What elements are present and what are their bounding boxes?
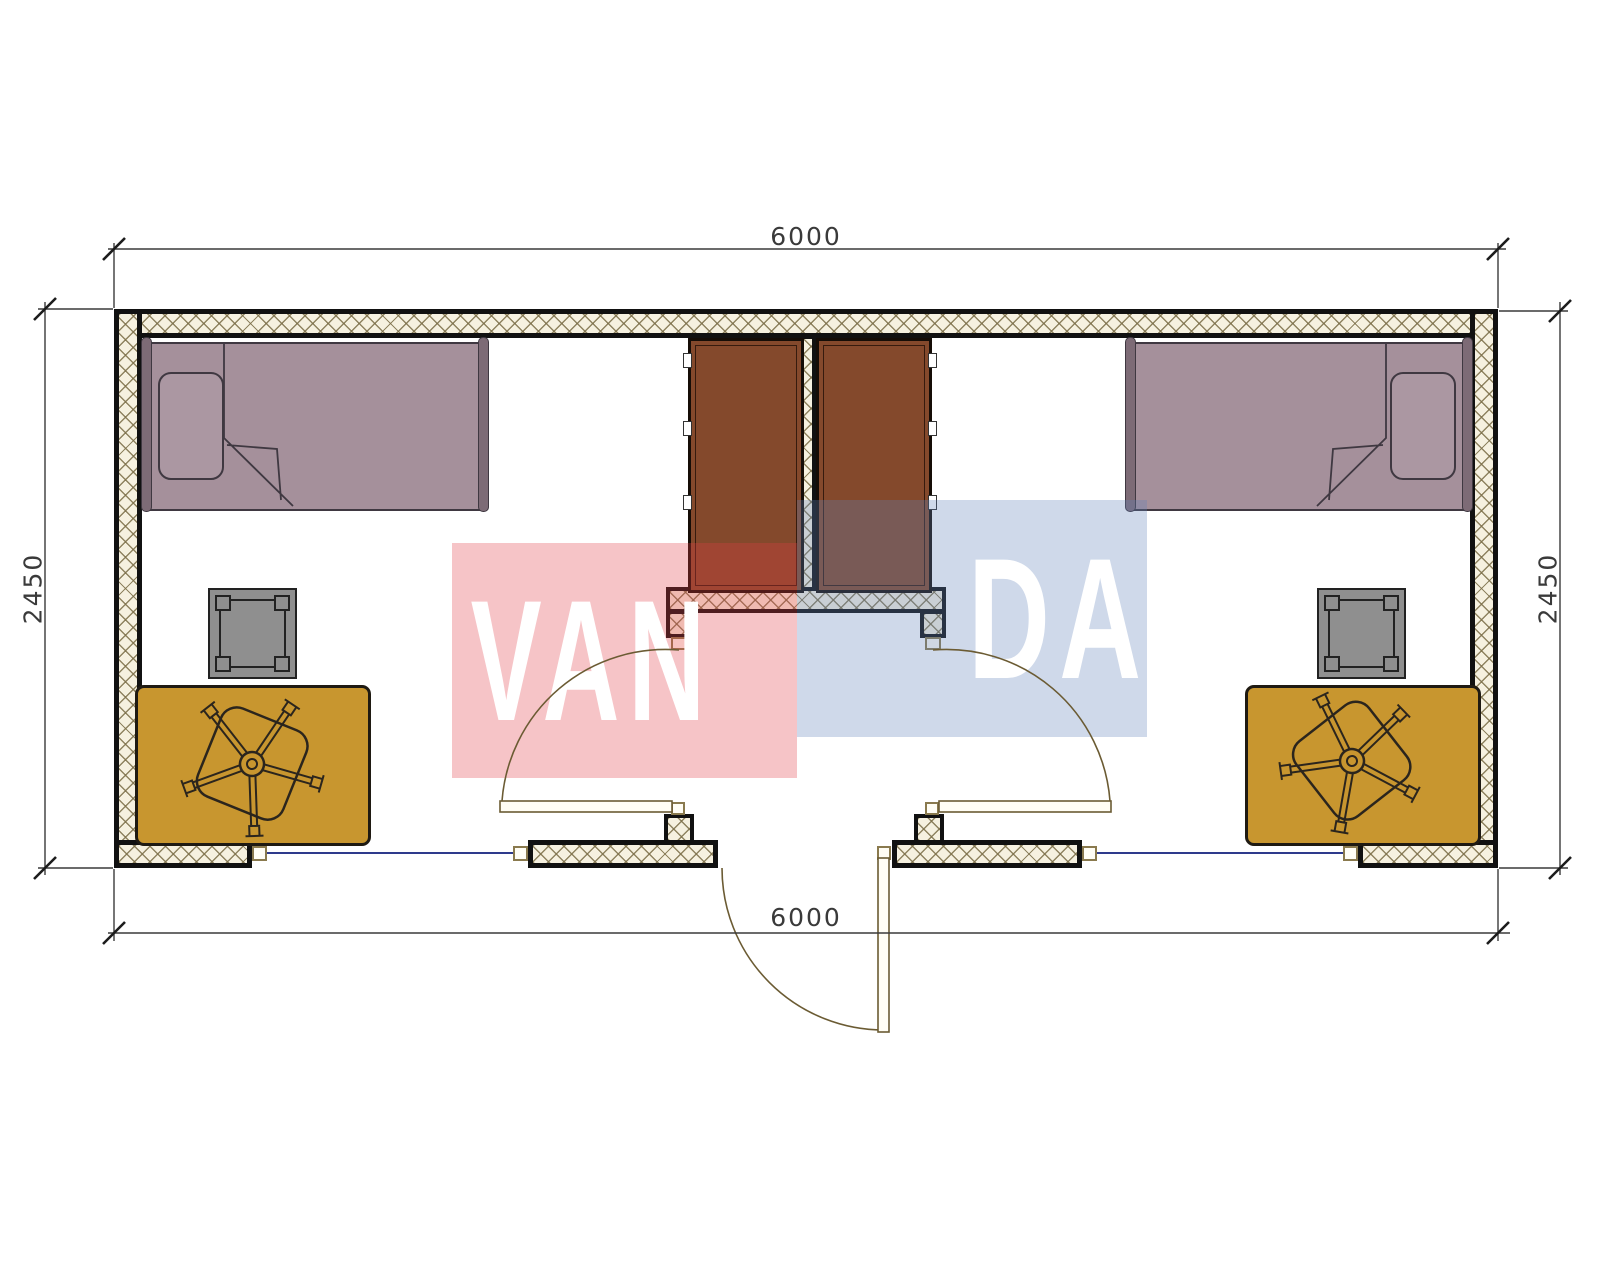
desk-left: [135, 685, 371, 846]
door-jamb-right-bottom: [925, 802, 939, 815]
stool-leg: [1324, 595, 1340, 611]
door-arc-entry: [722, 868, 884, 1030]
watermark-text-van: VAN: [452, 543, 685, 778]
dimension-label-bottom: 6000: [746, 903, 866, 932]
stool-leg: [1324, 656, 1340, 672]
wardrobe-left-hinge-1: [683, 353, 692, 368]
stool-leg: [274, 656, 290, 672]
stool-leg: [1383, 595, 1399, 611]
bed-left: [143, 342, 487, 511]
bed-left-headboard: [141, 337, 152, 512]
bed-right-footboard: [1125, 337, 1136, 512]
window-right-jamb-a: [1082, 846, 1097, 861]
window-right-jamb-b: [1343, 846, 1358, 861]
bed-left-footboard: [478, 337, 489, 512]
wall-bottom-porch-left: [528, 840, 718, 868]
stool-left: [208, 588, 297, 679]
window-left-jamb-b: [513, 846, 528, 861]
door-leaf-right-room: [939, 801, 1111, 812]
stool-right: [1317, 588, 1406, 679]
floor-plan-canvas: VAN DA: [0, 0, 1600, 1280]
wardrobe-left-hinge-3: [683, 495, 692, 510]
desk-right: [1245, 685, 1481, 846]
wardrobe-left-hinge-2: [683, 421, 692, 436]
entry-door-hinge-jamb: [877, 846, 891, 860]
door-jamb-left-bottom: [671, 802, 685, 815]
wardrobe-right-hinge-1: [928, 353, 937, 368]
dimension-label-left: 2450: [19, 529, 48, 649]
stool-leg: [274, 595, 290, 611]
bed-right-pillow: [1390, 372, 1456, 480]
door-leaf-left-room: [500, 801, 672, 812]
porch-pier-right: [914, 814, 944, 844]
wall-bottom-porch-right: [892, 840, 1082, 868]
stool-leg: [215, 656, 231, 672]
porch-pier-left: [664, 814, 694, 844]
bed-right-headboard: [1462, 337, 1473, 512]
stool-leg: [215, 595, 231, 611]
window-left-jamb-a: [252, 846, 267, 861]
door-leaf-entry: [878, 858, 889, 1032]
window-left: [267, 852, 513, 854]
dimension-label-top: 6000: [746, 222, 866, 251]
wall-top: [114, 309, 1498, 338]
bed-right: [1127, 342, 1471, 511]
watermark-text-da: DA: [919, 500, 1157, 737]
dimension-label-right: 2450: [1534, 529, 1563, 649]
wardrobe-right-hinge-2: [928, 421, 937, 436]
bed-left-pillow: [158, 372, 224, 480]
window-right: [1097, 852, 1343, 854]
stool-leg: [1383, 656, 1399, 672]
